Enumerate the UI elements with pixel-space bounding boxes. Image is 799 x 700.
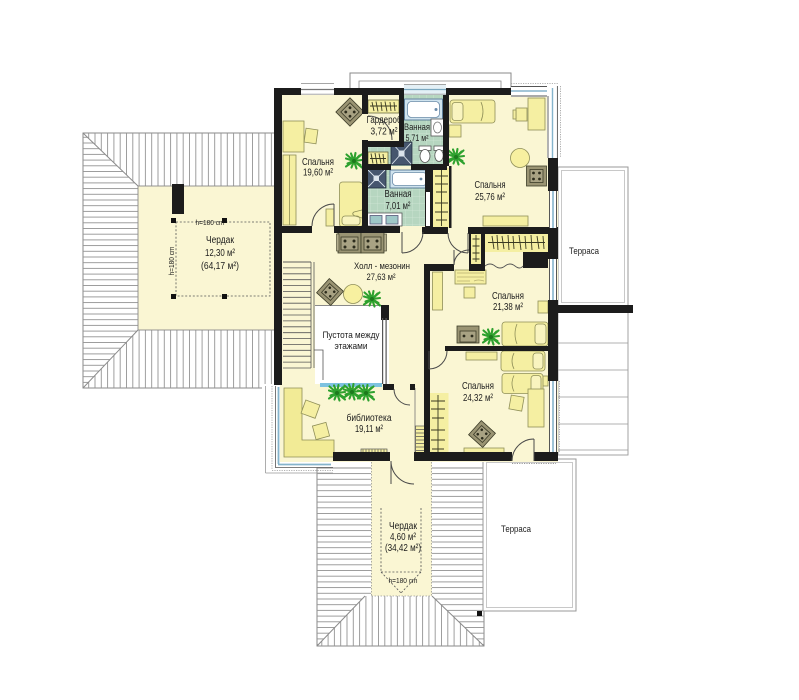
svg-text:Терраса: Терраса — [501, 524, 532, 535]
svg-text:(34,42 м²): (34,42 м²) — [385, 543, 421, 554]
svg-text:19,11 м²: 19,11 м² — [355, 424, 384, 435]
svg-text:21,38 м²: 21,38 м² — [493, 301, 523, 313]
svg-text:19,60 м²: 19,60 м² — [303, 167, 333, 179]
svg-text:25,76 м²: 25,76 м² — [475, 191, 505, 203]
svg-text:Чердак: Чердак — [206, 235, 235, 246]
svg-text:Холл - мезонин: Холл - мезонин — [354, 261, 410, 272]
svg-text:этажами: этажами — [335, 341, 368, 352]
svg-text:(64,17 м²): (64,17 м²) — [201, 261, 239, 272]
svg-text:12,30 м²: 12,30 м² — [205, 248, 236, 259]
svg-text:Ванная: Ванная — [404, 122, 430, 132]
svg-text:3,72 м²: 3,72 м² — [371, 127, 399, 138]
svg-text:библиотека: библиотека — [347, 412, 392, 424]
svg-text:Спальня: Спальня — [462, 380, 494, 392]
svg-text:h=180 cm: h=180 cm — [167, 247, 176, 276]
svg-text:Чердак: Чердак — [389, 521, 418, 532]
svg-text:27,63 м²: 27,63 м² — [367, 272, 396, 283]
svg-text:Гардероб: Гардероб — [367, 114, 402, 126]
svg-text:5,71 м²: 5,71 м² — [406, 133, 429, 143]
svg-text:7,01 м²: 7,01 м² — [386, 201, 412, 212]
svg-text:h=180 cm: h=180 cm — [389, 576, 418, 585]
svg-text:Терраса: Терраса — [569, 246, 600, 257]
svg-text:Пустота между: Пустота между — [323, 330, 380, 341]
svg-text:Спальня: Спальня — [475, 179, 506, 191]
svg-text:h=180 cm: h=180 cm — [196, 218, 225, 227]
svg-text:24,32 м²: 24,32 м² — [463, 392, 493, 404]
svg-text:4,60 м²: 4,60 м² — [390, 532, 417, 543]
svg-text:Ванная: Ванная — [385, 189, 412, 200]
